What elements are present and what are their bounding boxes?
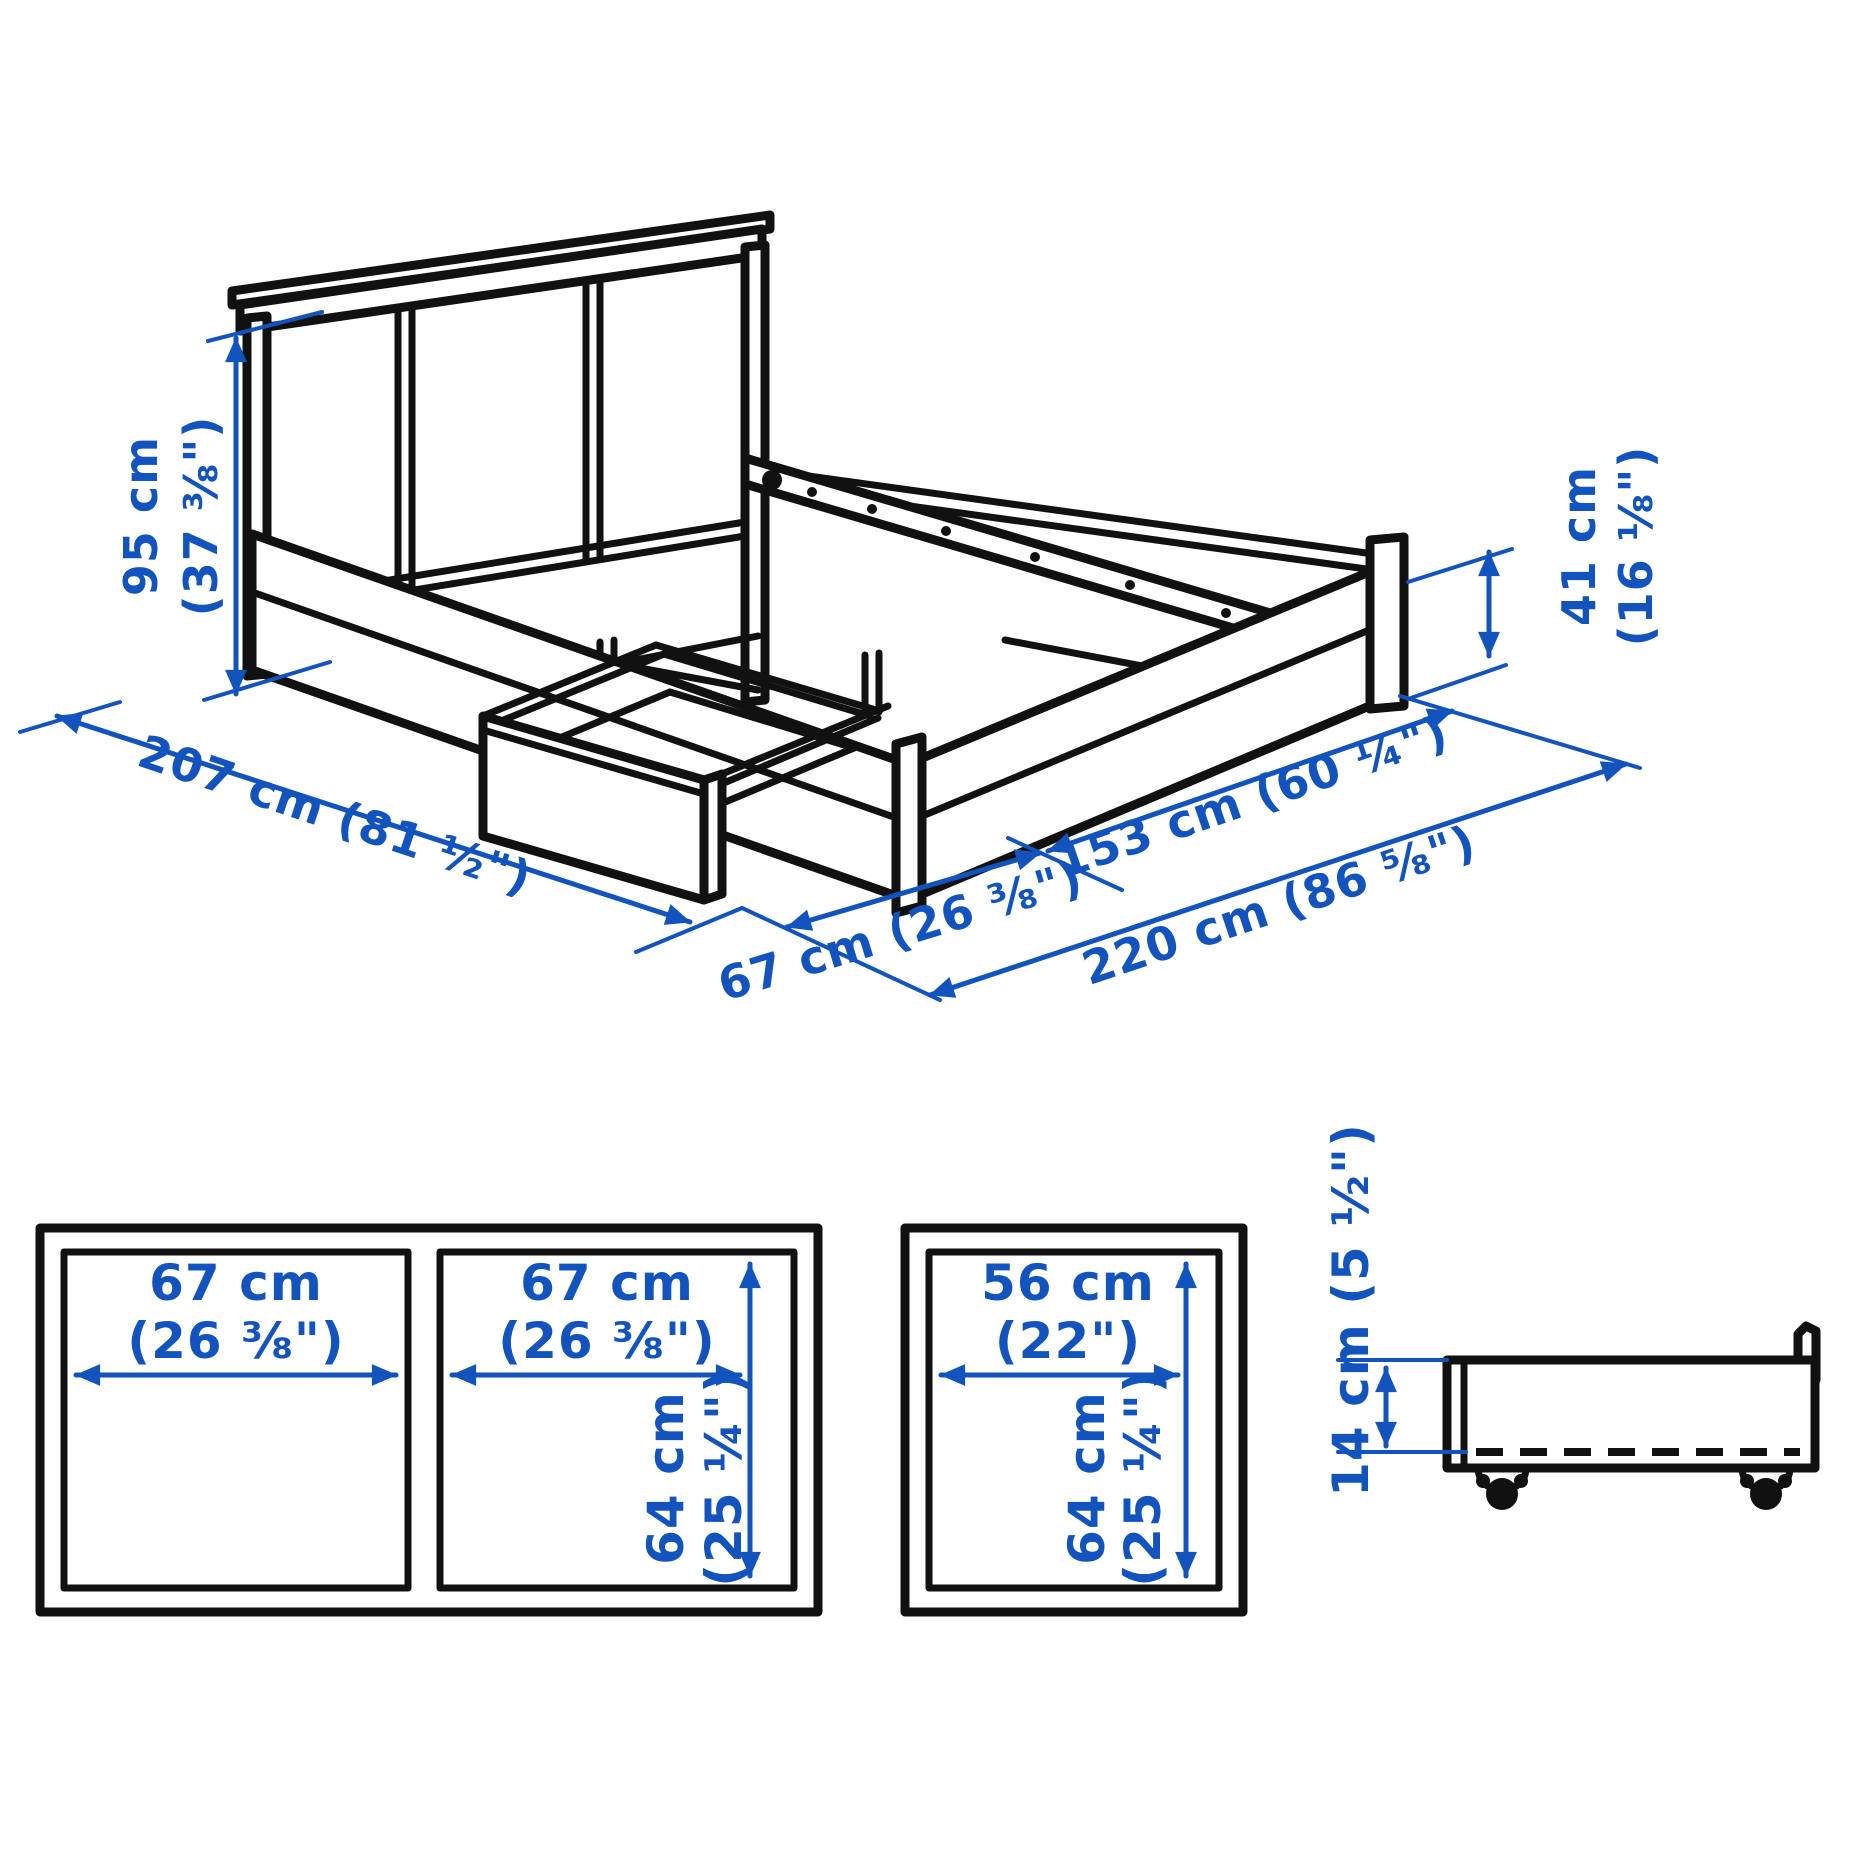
extension-line bbox=[1408, 665, 1506, 699]
extension-line bbox=[1408, 549, 1512, 582]
bed-isometric-view: 95 cm (37 ⅜") 41 cm (16 ⅛") 207 cm (81 ½… bbox=[20, 215, 1663, 1012]
dimension-label: 41 cm bbox=[1552, 466, 1606, 626]
dimension-label: (26 ⅜") bbox=[498, 1312, 716, 1370]
storage-box-front-view: 67 cm (26 ⅜") 67 cm (26 ⅜") 64 cm (25 ¼"… bbox=[40, 1228, 818, 1612]
dimension-label: 64 cm bbox=[637, 1391, 695, 1565]
screw-hole bbox=[1221, 608, 1231, 618]
dimension-label: 67 cm bbox=[149, 1254, 323, 1312]
screw-hole bbox=[867, 504, 877, 514]
caster-wheel bbox=[1476, 1468, 1528, 1510]
dimension-label: (22") bbox=[995, 1312, 1141, 1370]
screw-hole bbox=[807, 487, 817, 497]
drawer-side-profile: 14 cm (5 ½") bbox=[1322, 1123, 1816, 1510]
dimension-label: 56 cm bbox=[981, 1254, 1155, 1312]
dimension-label: (37 ⅜") bbox=[174, 416, 228, 617]
screw-hole bbox=[941, 526, 951, 536]
extension-line bbox=[636, 908, 742, 952]
dimension-label: (26 ⅜") bbox=[127, 1312, 345, 1370]
screw-hole bbox=[1030, 552, 1040, 562]
caster-wheel bbox=[1740, 1468, 1792, 1510]
product-dimension-diagram: 95 cm (37 ⅜") 41 cm (16 ⅛") 207 cm (81 ½… bbox=[0, 0, 1860, 1860]
dimension-label: 14 cm (5 ½") bbox=[1322, 1123, 1380, 1497]
footboard-right-post bbox=[1370, 537, 1404, 709]
dimension-label: (16 ⅛") bbox=[1609, 446, 1663, 647]
extension-line bbox=[20, 702, 120, 732]
screw-hole bbox=[1125, 580, 1135, 590]
dimension-label: 67 cm bbox=[520, 1254, 694, 1312]
dimension-label: 64 cm bbox=[1058, 1391, 1116, 1565]
dimension-label: (25 ¼") bbox=[1114, 1369, 1172, 1587]
screw-hole-large bbox=[762, 470, 782, 490]
dimension-label: 95 cm bbox=[114, 436, 168, 596]
dim-frame-height: 41 cm (16 ⅛") bbox=[1408, 446, 1663, 699]
dimension-diagram-canvas: 95 cm (37 ⅜") 41 cm (16 ⅛") 207 cm (81 ½… bbox=[0, 0, 1860, 1860]
storage-box-end-view: 56 cm (22") 64 cm (25 ¼") bbox=[905, 1228, 1243, 1612]
dimension-label: (25 ¼") bbox=[695, 1369, 753, 1587]
